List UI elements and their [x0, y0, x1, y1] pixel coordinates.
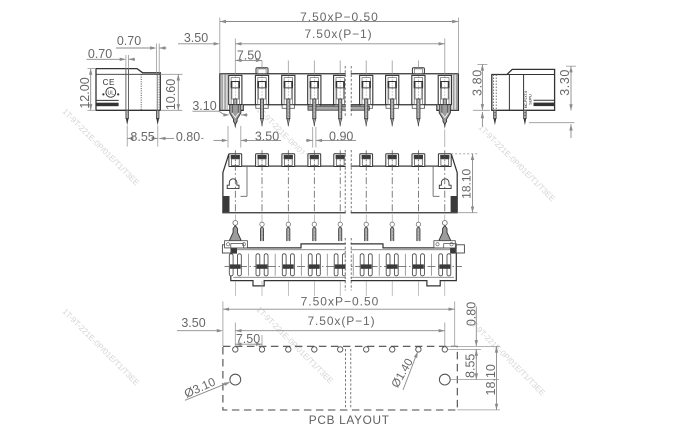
svg-text:0.80: 0.80 — [176, 130, 200, 144]
svg-text:SUPU: SUPU — [529, 94, 533, 105]
svg-text:18.10: 18.10 — [460, 168, 474, 198]
svg-text:8.55: 8.55 — [464, 354, 478, 378]
svg-text:10.60: 10.60 — [164, 79, 178, 110]
svg-text:7.50xP−0.50: 7.50xP−0.50 — [300, 10, 379, 24]
svg-text:0.70: 0.70 — [117, 34, 141, 48]
svg-text:3.50: 3.50 — [255, 130, 279, 144]
svg-text:CE: CE — [103, 78, 115, 87]
svg-text:MC-P0X7.6: MC-P0X7.6 — [524, 91, 528, 109]
svg-text:7.50: 7.50 — [237, 48, 261, 62]
svg-text:0.70: 0.70 — [88, 47, 112, 61]
svg-text:8.55: 8.55 — [130, 130, 154, 144]
svg-text:3.10: 3.10 — [192, 99, 216, 113]
svg-text:PCB LAYOUT: PCB LAYOUT — [309, 413, 390, 427]
svg-text:0.80: 0.80 — [465, 302, 479, 326]
svg-text:3.80: 3.80 — [470, 69, 484, 96]
svg-text:0.90: 0.90 — [329, 130, 353, 144]
svg-text:3.30: 3.30 — [558, 69, 572, 96]
svg-text:UL: UL — [107, 91, 114, 97]
svg-text:3.50: 3.50 — [184, 31, 208, 45]
svg-text:7.50x(P−1): 7.50x(P−1) — [304, 27, 372, 41]
svg-text:18.10: 18.10 — [484, 364, 498, 395]
svg-text:12.00: 12.00 — [78, 77, 92, 108]
svg-text:7.50xP−0.50: 7.50xP−0.50 — [301, 294, 380, 308]
svg-text:7.50x(P−1): 7.50x(P−1) — [307, 314, 375, 328]
svg-text:3.50: 3.50 — [181, 316, 205, 330]
svg-text:7.50: 7.50 — [236, 332, 260, 346]
